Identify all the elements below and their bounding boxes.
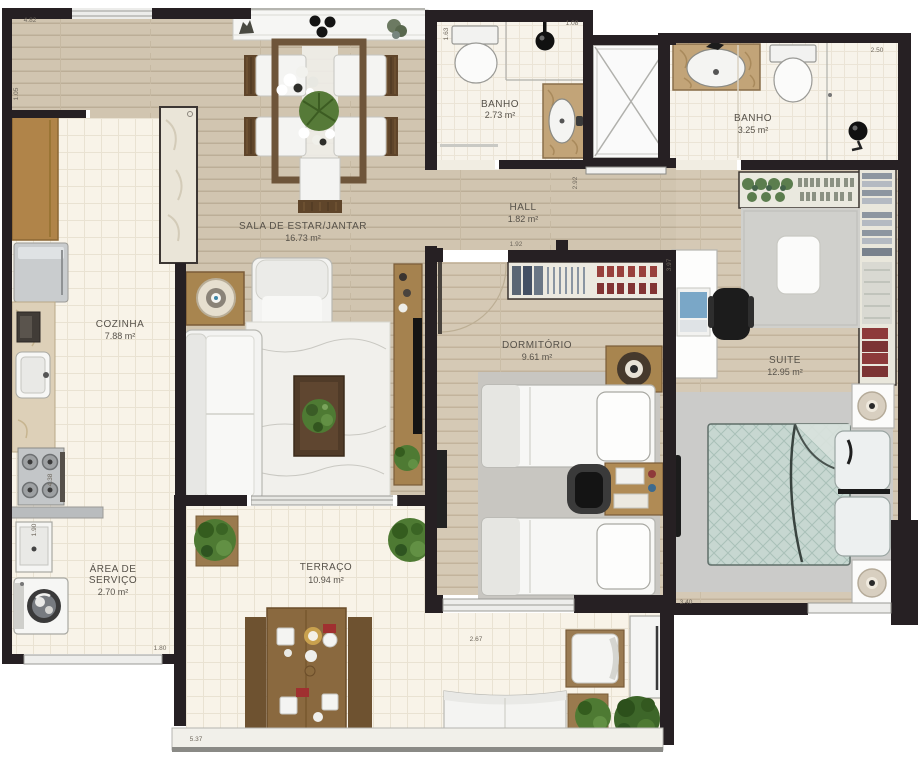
svg-text:1.82 m²: 1.82 m² (508, 214, 539, 224)
svg-text:1.80: 1.80 (154, 645, 167, 652)
svg-text:1.05: 1.05 (13, 87, 20, 100)
svg-text:2.92: 2.92 (572, 176, 579, 189)
svg-text:3.97: 3.97 (666, 258, 673, 271)
svg-text:BANHO: BANHO (481, 99, 519, 110)
svg-text:1.08: 1.08 (566, 20, 579, 27)
svg-text:1.92: 1.92 (510, 241, 523, 248)
svg-text:12.95 m²: 12.95 m² (767, 367, 803, 377)
svg-text:2.50: 2.50 (871, 47, 884, 54)
svg-text:4.82: 4.82 (24, 17, 37, 24)
svg-text:HALL: HALL (509, 202, 536, 213)
svg-text:DORMITÓRIO: DORMITÓRIO (502, 338, 572, 351)
svg-text:3.25 m²: 3.25 m² (738, 125, 769, 135)
svg-text:TERRAÇO: TERRAÇO (300, 562, 352, 573)
svg-text:SALA DE ESTAR/JANTAR: SALA DE ESTAR/JANTAR (239, 221, 367, 232)
svg-text:SERVIÇO: SERVIÇO (89, 575, 137, 586)
svg-text:2.67: 2.67 (470, 636, 483, 643)
svg-text:1.63: 1.63 (443, 27, 450, 40)
svg-text:SUITE: SUITE (769, 355, 801, 366)
svg-text:9.61 m²: 9.61 m² (522, 352, 553, 362)
svg-text:2.73 m²: 2.73 m² (485, 110, 516, 120)
svg-text:5.37: 5.37 (190, 736, 203, 743)
svg-text:4.38: 4.38 (47, 473, 54, 486)
svg-text:2.70 m²: 2.70 m² (98, 587, 129, 597)
svg-text:BANHO: BANHO (734, 113, 772, 124)
svg-text:COZINHA: COZINHA (96, 319, 145, 330)
svg-text:3.40: 3.40 (680, 599, 693, 606)
svg-text:10.94 m²: 10.94 m² (308, 575, 344, 585)
svg-text:7.88 m²: 7.88 m² (105, 331, 136, 341)
svg-text:ÁREA DE: ÁREA DE (90, 562, 137, 575)
svg-text:1.90: 1.90 (31, 523, 38, 536)
svg-text:16.73 m²: 16.73 m² (285, 233, 321, 243)
